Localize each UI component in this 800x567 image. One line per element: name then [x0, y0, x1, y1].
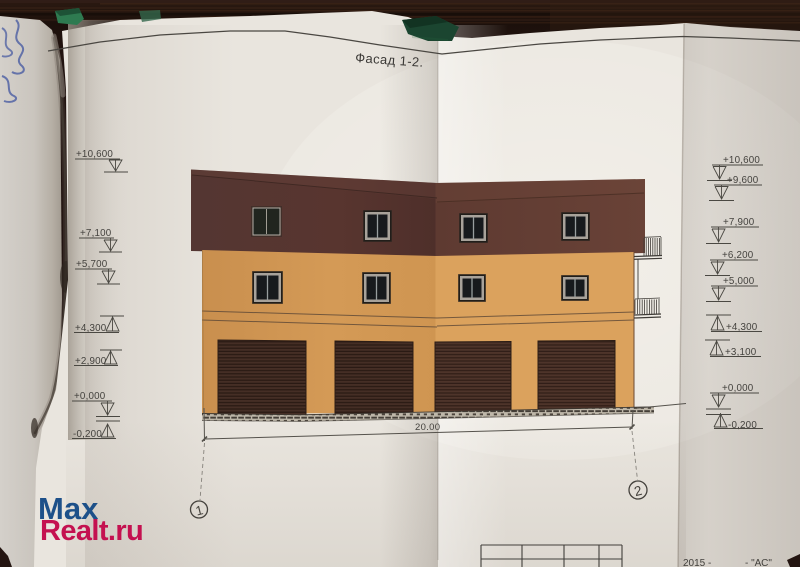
svg-text:+7,900: +7,900	[723, 217, 755, 228]
svg-text:+7,100: +7,100	[80, 228, 112, 239]
svg-text:+0,000: +0,000	[722, 383, 754, 394]
svg-text:+2,900: +2,900	[75, 356, 107, 367]
svg-text:+10,600: +10,600	[76, 149, 113, 160]
svg-text:+3,100: +3,100	[725, 347, 757, 358]
svg-text:+6,200: +6,200	[722, 250, 754, 261]
svg-text:+5,700: +5,700	[76, 259, 108, 270]
svg-text:20.00: 20.00	[415, 422, 440, 433]
svg-text:2015 -: 2015 -	[683, 558, 711, 567]
svg-text:+5,000: +5,000	[723, 276, 755, 287]
svg-text:+10,600: +10,600	[723, 155, 760, 166]
svg-text:-0,200: -0,200	[728, 420, 757, 431]
svg-text:+4,300: +4,300	[726, 322, 758, 333]
svg-text:+4,300: +4,300	[75, 323, 107, 334]
svg-text:-0,200: -0,200	[73, 429, 102, 440]
svg-text:+9,600: +9,600	[727, 175, 759, 186]
svg-text:Realt.ru: Realt.ru	[40, 515, 143, 547]
svg-text:+0,000: +0,000	[74, 391, 106, 402]
svg-text:- "АС": - "АС"	[745, 558, 772, 567]
